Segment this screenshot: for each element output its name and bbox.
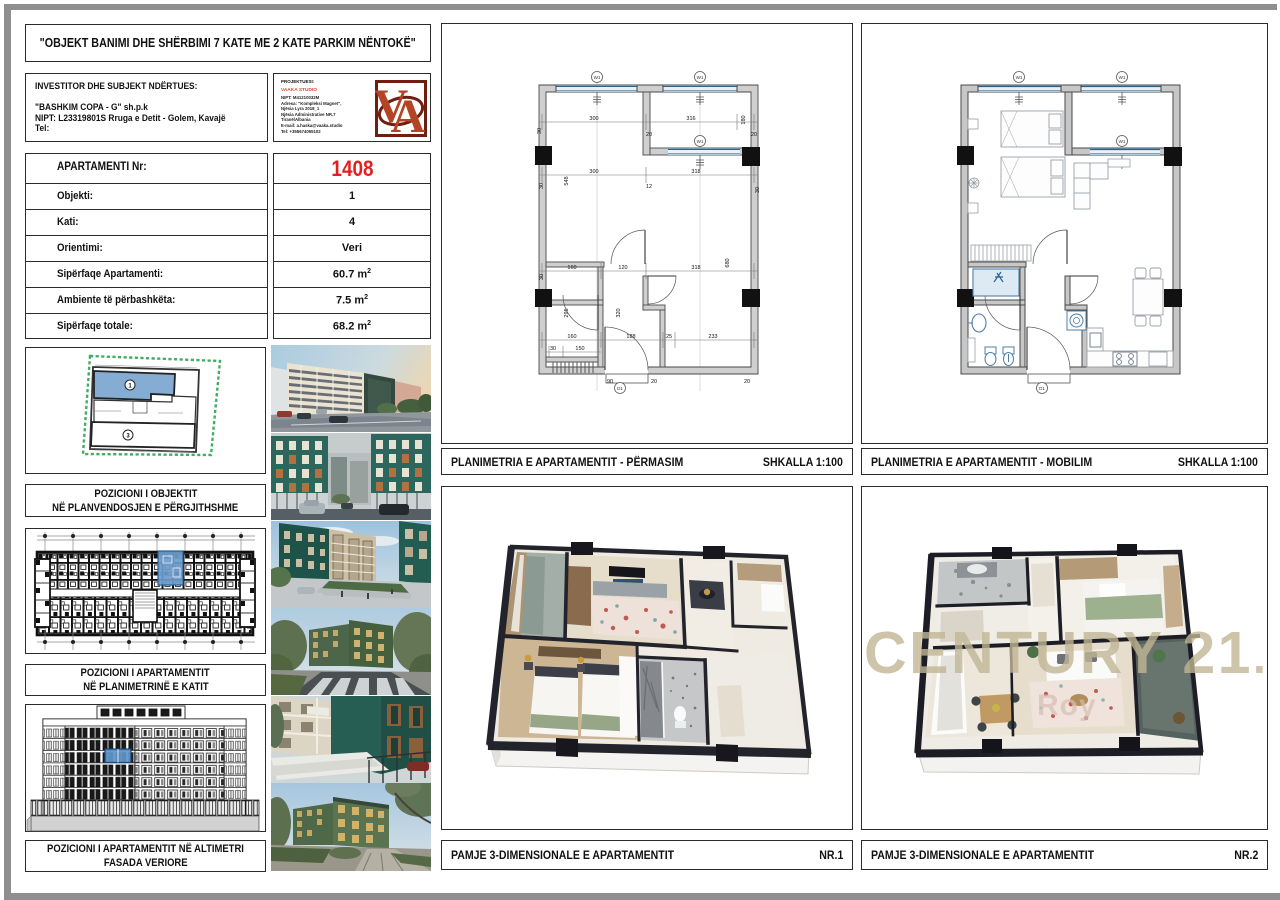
svg-text:20: 20 (651, 379, 657, 385)
svg-text:12: 12 (646, 184, 652, 190)
svg-text:W1: W1 (1119, 75, 1126, 80)
svg-text:320: 320 (616, 308, 622, 317)
svg-text:30: 30 (550, 346, 556, 352)
svg-text:A: A (391, 90, 426, 137)
svg-text:30: 30 (755, 187, 761, 193)
svg-text:D1: D1 (617, 386, 623, 391)
svg-text:160: 160 (567, 334, 576, 340)
svg-text:W1: W1 (594, 75, 601, 80)
svg-text:300: 300 (589, 116, 598, 122)
svg-text:W1: W1 (1016, 75, 1023, 80)
svg-text:188: 188 (626, 334, 635, 340)
svg-text:180: 180 (741, 115, 747, 124)
svg-text:30: 30 (537, 128, 543, 134)
svg-text:W1: W1 (697, 139, 704, 144)
svg-text:120: 120 (618, 265, 627, 271)
svg-text:318: 318 (691, 265, 700, 271)
svg-text:20: 20 (751, 132, 757, 138)
svg-text:30: 30 (539, 183, 545, 189)
svg-text:316: 316 (686, 116, 695, 122)
svg-text:D1: D1 (1039, 386, 1045, 391)
svg-text:150: 150 (575, 346, 584, 352)
svg-text:680: 680 (725, 258, 731, 267)
svg-text:233: 233 (708, 334, 717, 340)
svg-text:20: 20 (744, 379, 750, 385)
svg-text:318: 318 (691, 169, 700, 175)
svg-text:300: 300 (589, 169, 598, 175)
svg-text:30: 30 (539, 274, 545, 280)
svg-text:548: 548 (564, 176, 570, 185)
svg-text:295: 295 (564, 308, 570, 317)
svg-text:W1: W1 (697, 75, 704, 80)
svg-text:160: 160 (567, 265, 576, 271)
svg-text:W1: W1 (1119, 139, 1126, 144)
svg-text:25: 25 (666, 334, 672, 340)
svg-text:90: 90 (607, 379, 613, 385)
svg-text:20: 20 (646, 132, 652, 138)
